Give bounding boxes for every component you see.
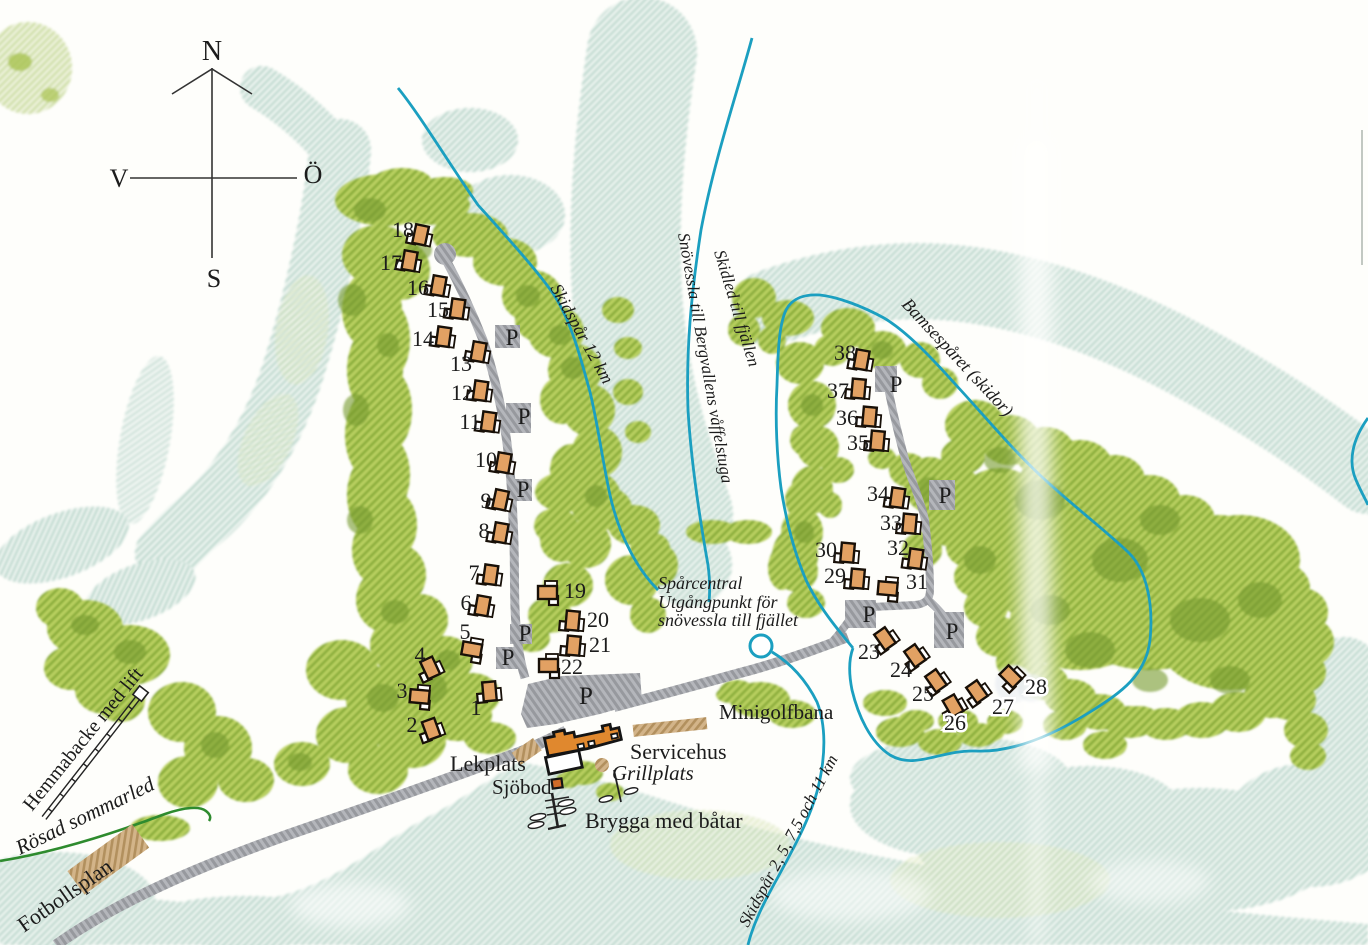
svg-text:8: 8	[479, 518, 490, 543]
svg-text:P: P	[518, 404, 531, 429]
svg-text:10: 10	[475, 447, 497, 472]
svg-text:Minigolfbana: Minigolfbana	[719, 700, 834, 724]
svg-text:28: 28	[1025, 674, 1047, 699]
svg-text:24: 24	[890, 657, 912, 682]
svg-text:Grillplats: Grillplats	[612, 761, 694, 785]
svg-text:25: 25	[912, 681, 934, 706]
svg-text:37: 37	[827, 378, 849, 403]
svg-text:3: 3	[397, 678, 408, 703]
svg-text:7: 7	[469, 560, 480, 585]
svg-text:12: 12	[451, 380, 473, 405]
svg-text:V: V	[110, 164, 129, 193]
svg-text:P: P	[946, 619, 959, 644]
svg-text:16: 16	[407, 275, 429, 300]
svg-text:1: 1	[471, 695, 482, 720]
svg-text:26: 26	[944, 710, 966, 735]
svg-text:snövessla till fjället: snövessla till fjället	[658, 610, 799, 630]
svg-text:14: 14	[412, 326, 434, 351]
svg-text:P: P	[579, 683, 593, 710]
svg-text:2: 2	[407, 712, 418, 737]
svg-text:38: 38	[834, 340, 856, 365]
svg-text:S: S	[207, 264, 221, 293]
svg-text:P: P	[506, 325, 519, 350]
svg-text:6: 6	[461, 590, 472, 615]
svg-text:23: 23	[858, 639, 880, 664]
svg-text:Sjöbod: Sjöbod	[492, 775, 552, 799]
svg-text:27: 27	[992, 694, 1014, 719]
svg-text:P: P	[519, 621, 532, 646]
svg-text:13: 13	[450, 351, 472, 376]
svg-text:32: 32	[887, 535, 909, 560]
svg-text:15: 15	[427, 297, 449, 322]
svg-text:31: 31	[906, 569, 928, 594]
svg-text:9: 9	[481, 488, 492, 513]
svg-text:Ö: Ö	[304, 160, 323, 189]
svg-text:Spårcentral: Spårcentral	[658, 573, 742, 593]
svg-text:5: 5	[460, 619, 471, 644]
svg-text:30: 30	[815, 537, 837, 562]
svg-text:P: P	[863, 602, 876, 627]
svg-text:17: 17	[380, 250, 402, 275]
svg-text:29: 29	[824, 563, 846, 588]
svg-text:18: 18	[392, 217, 414, 242]
svg-text:N: N	[202, 36, 222, 67]
svg-text:22: 22	[561, 654, 583, 679]
svg-text:35: 35	[847, 430, 869, 455]
svg-text:P: P	[517, 477, 530, 502]
svg-text:4: 4	[415, 642, 426, 667]
svg-text:11: 11	[459, 409, 480, 434]
svg-text:Lekplats: Lekplats	[450, 751, 526, 776]
svg-text:P: P	[939, 483, 952, 508]
svg-text:21: 21	[589, 632, 611, 657]
svg-text:Brygga med båtar: Brygga med båtar	[585, 808, 743, 833]
svg-text:19: 19	[564, 578, 586, 603]
svg-text:20: 20	[587, 607, 609, 632]
svg-text:34: 34	[867, 481, 889, 506]
svg-text:33: 33	[880, 510, 902, 535]
svg-text:P: P	[502, 645, 515, 670]
svg-text:Utgångpunkt för: Utgångpunkt för	[658, 592, 778, 612]
svg-text:P: P	[890, 372, 903, 397]
svg-text:36: 36	[836, 405, 858, 430]
